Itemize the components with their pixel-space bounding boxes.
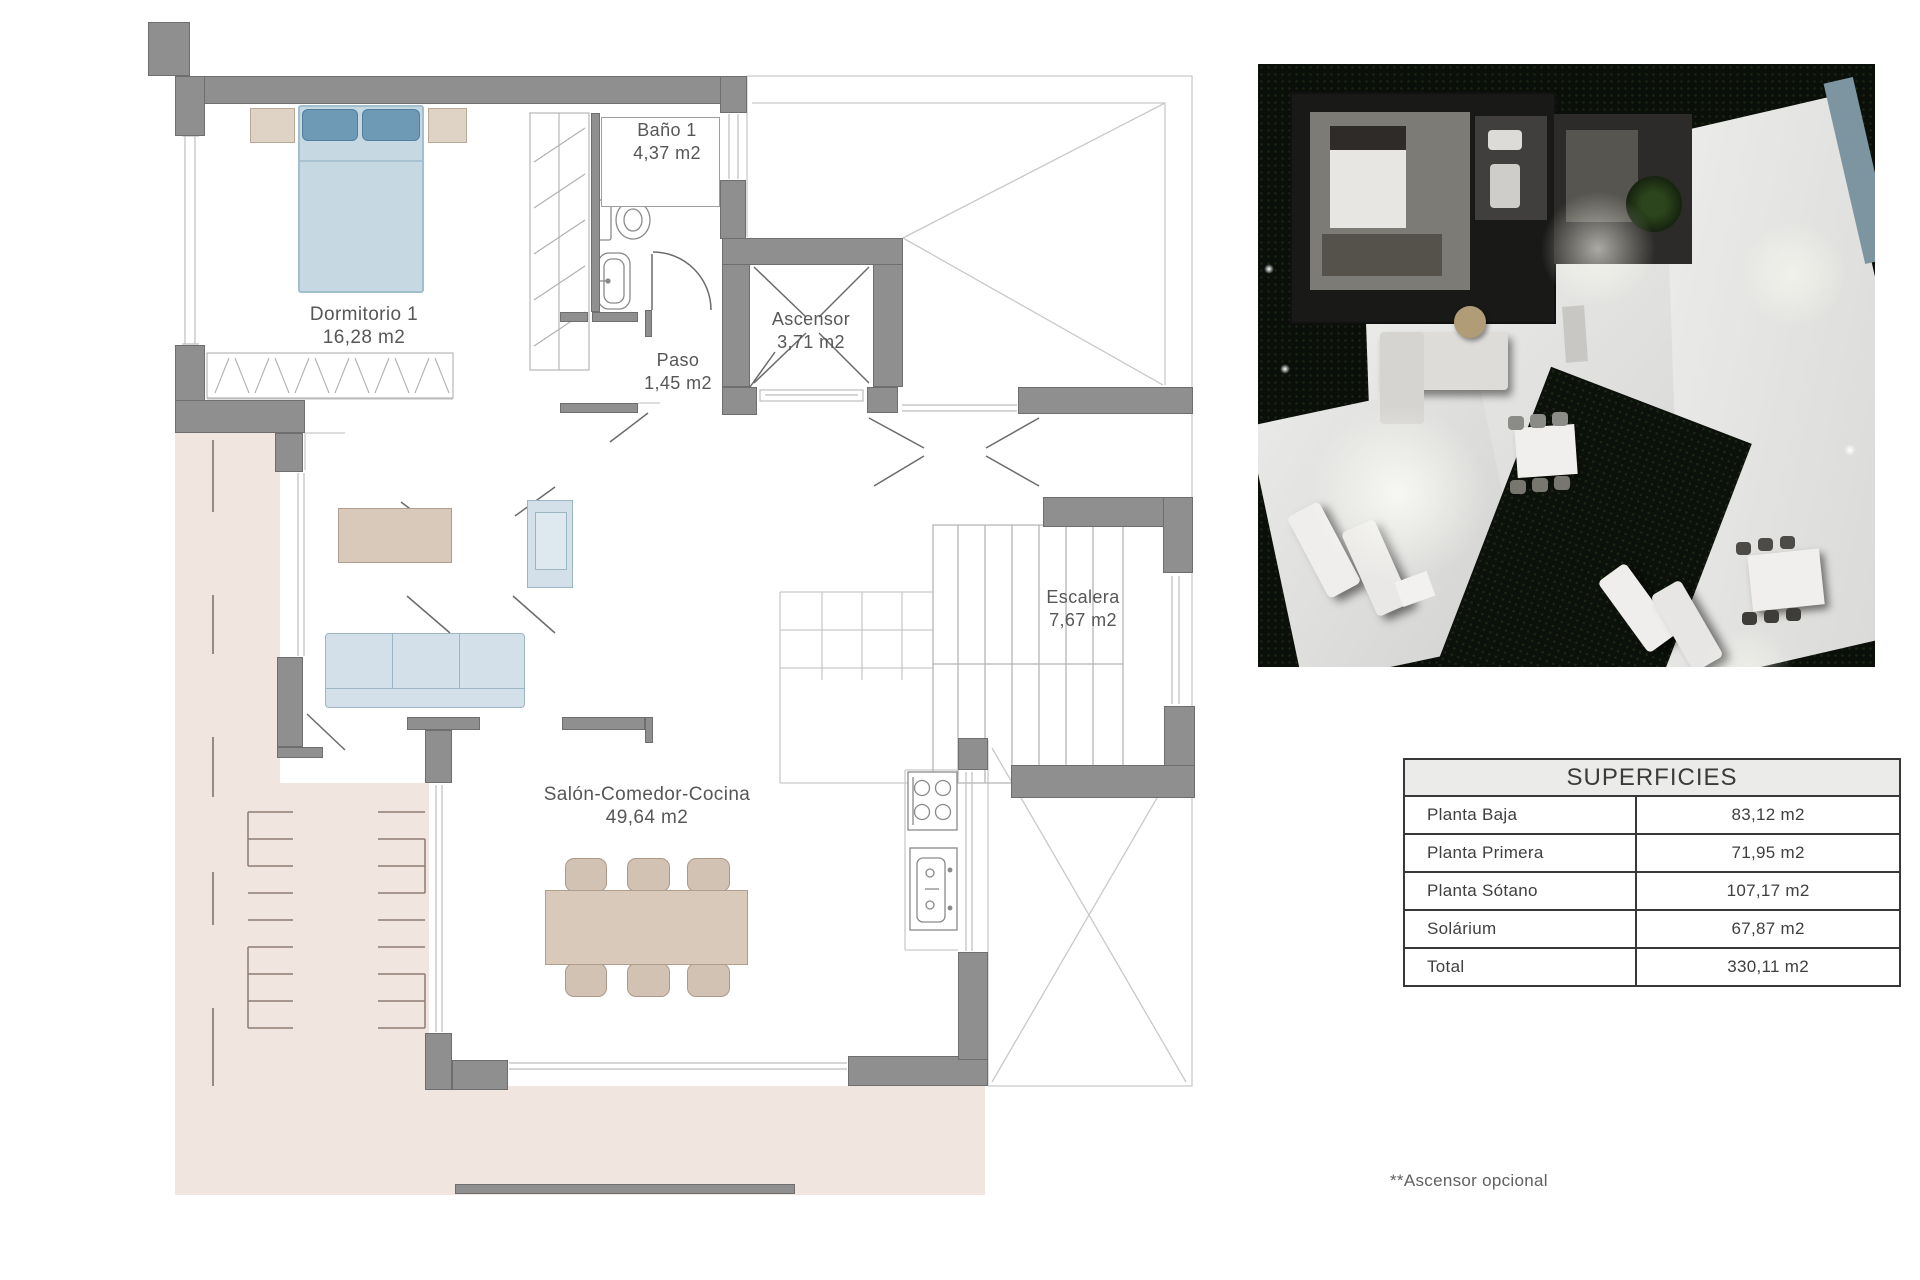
render-outdoor-table [1747, 548, 1824, 611]
room-area: 3,71 m2 [772, 331, 850, 354]
wall-segment [720, 180, 746, 239]
table-row: Solárium 67,87 m2 [1405, 911, 1899, 949]
wall-segment [277, 747, 323, 758]
wall-segment [720, 76, 747, 113]
table-row: Total 330,11 m2 [1405, 949, 1899, 985]
dining-chair [687, 963, 730, 997]
wall-segment [592, 312, 638, 322]
wall-segment [722, 264, 750, 387]
row-label: Solárium [1405, 911, 1637, 947]
room-label-dormitorio1: Dormitorio 1 16,28 m2 [310, 303, 418, 349]
wall-segment [148, 22, 190, 76]
room-label-salon: Salón-Comedor-Cocina 49,64 m2 [544, 783, 751, 829]
wall-segment [591, 113, 600, 312]
wall-segment [275, 433, 303, 472]
wall-segment [175, 76, 205, 136]
wall-segment [873, 264, 903, 387]
room-area: 4,37 m2 [633, 142, 701, 165]
wall-segment [958, 952, 988, 1060]
room-label-escalera: Escalera 7,67 m2 [1046, 586, 1119, 632]
wall-segment [848, 1056, 988, 1086]
wall-segment [645, 310, 652, 337]
room-name: Paso [644, 349, 712, 372]
render-kitchen-island [1562, 305, 1588, 362]
room-area: 7,67 m2 [1046, 609, 1119, 632]
room-area: 16,28 m2 [310, 326, 418, 349]
room-area: 49,64 m2 [544, 806, 751, 829]
wall-segment [455, 1184, 795, 1194]
wall-segment [560, 403, 638, 413]
page: Dormitorio 1 16,28 m2 Baño 1 4,37 m2 Pas… [0, 0, 1920, 1280]
table-title: SUPERFICIES [1405, 760, 1899, 797]
render-coffee-table [1454, 306, 1486, 338]
wall-segment [175, 400, 305, 433]
superficies-table: SUPERFICIES Planta Baja 83,12 m2 Planta … [1403, 758, 1901, 987]
room-name: Escalera [1046, 586, 1119, 609]
row-value: 330,11 m2 [1637, 949, 1899, 985]
room-name: Ascensor [772, 308, 850, 331]
dining-chair [627, 963, 670, 997]
dining-chair [627, 858, 670, 892]
wall-segment [407, 717, 480, 730]
render-bedroom-block [1290, 92, 1556, 324]
wall-segment [1163, 497, 1193, 573]
coffee-table [338, 508, 452, 563]
room-name: Baño 1 [633, 119, 701, 142]
row-value: 83,12 m2 [1637, 797, 1899, 833]
nightstand-left [250, 108, 295, 143]
pillow-right [362, 109, 420, 141]
render-dining-table [1514, 424, 1577, 478]
dining-chair [565, 858, 607, 892]
wall-segment [562, 717, 645, 730]
nightstand-right [428, 108, 467, 143]
dining-chair [565, 963, 607, 997]
wall-segment [425, 1033, 452, 1090]
wall-segment [560, 312, 588, 322]
row-label: Total [1405, 949, 1637, 985]
wall-segment [1018, 387, 1193, 414]
wall-segment [425, 730, 452, 783]
row-value: 107,17 m2 [1637, 873, 1899, 909]
wall-segment [1011, 765, 1195, 798]
wall-segment [722, 238, 903, 265]
pillow-left [302, 109, 358, 141]
room-name: Salón-Comedor-Cocina [544, 783, 751, 806]
row-value: 71,95 m2 [1637, 835, 1899, 871]
floor-plan: Dormitorio 1 16,28 m2 Baño 1 4,37 m2 Pas… [0, 0, 1240, 1280]
room-label-ascensor: Ascensor 3,71 m2 [772, 308, 850, 354]
row-value: 67,87 m2 [1637, 911, 1899, 947]
dining-chair [687, 858, 730, 892]
wall-segment [722, 387, 757, 415]
row-label: Planta Sótano [1405, 873, 1637, 909]
room-name: Dormitorio 1 [310, 303, 418, 326]
wall-segment [645, 717, 653, 743]
aerial-render-image [1258, 64, 1875, 667]
table-row: Planta Baja 83,12 m2 [1405, 797, 1899, 835]
wall-segment [175, 76, 747, 104]
armchair [527, 500, 573, 588]
wall-segment [958, 738, 988, 770]
room-label-paso: Paso 1,45 m2 [644, 349, 712, 395]
table-row: Planta Primera 71,95 m2 [1405, 835, 1899, 873]
row-label: Planta Primera [1405, 835, 1637, 871]
wall-segment [452, 1060, 508, 1090]
render-sofa-chaise [1380, 332, 1424, 424]
wall-segment [867, 387, 898, 413]
render-room2-block [1554, 114, 1692, 264]
wall-segment [277, 657, 303, 747]
dining-table [545, 890, 748, 965]
footnote: **Ascensor opcional [1390, 1171, 1548, 1191]
room-area: 1,45 m2 [644, 372, 712, 395]
room-label-bano1: Baño 1 4,37 m2 [633, 119, 701, 165]
bed-sheet-line [300, 160, 422, 162]
table-row: Planta Sótano 107,17 m2 [1405, 873, 1899, 911]
sofa [325, 633, 525, 708]
row-label: Planta Baja [1405, 797, 1637, 833]
